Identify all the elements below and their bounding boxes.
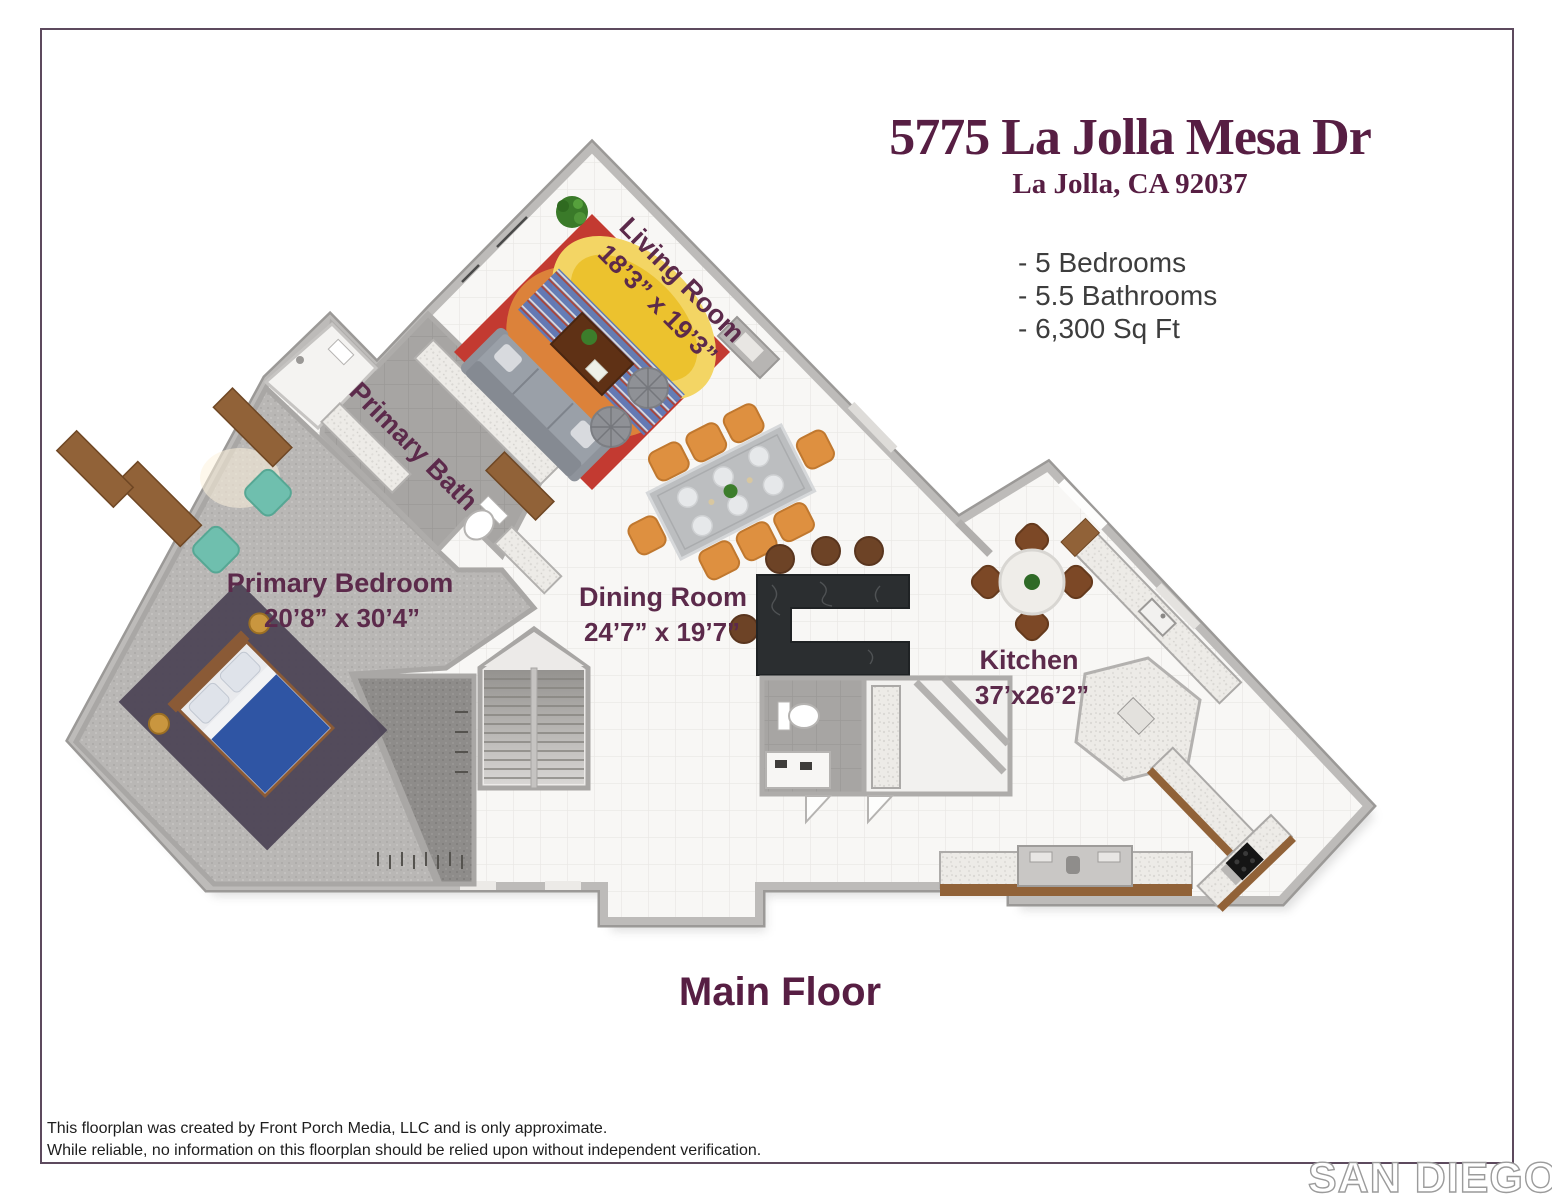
dining-room-dims: 24’7” x 19’7” (584, 617, 740, 647)
floorplan-page: Living Room 18’3” x 19’3” Primary Bath P… (0, 0, 1552, 1200)
page-subtitle: La Jolla, CA 92037 (860, 168, 1400, 201)
kitchen-dims: 37’x26’2” (975, 680, 1089, 710)
primary-bedroom-label: Primary Bedroom (227, 568, 454, 598)
spec-bedrooms: - 5 Bedrooms (1018, 246, 1217, 279)
mls-logo: SAN DIEGOMLS (1308, 1154, 1552, 1200)
mls-logo-part1: SAN DIEGO (1308, 1154, 1552, 1200)
spec-sqft: - 6,300 Sq Ft (1018, 312, 1217, 345)
disclaimer: This floorplan was created by Front Porc… (47, 1118, 761, 1162)
kitchen-label: Kitchen (979, 645, 1078, 675)
powder-room (762, 678, 864, 794)
disclaimer-line1: This floorplan was created by Front Porc… (47, 1118, 761, 1140)
floor-label: Main Floor (580, 970, 980, 1015)
primary-bedroom-dims: 20’8” x 30’4” (264, 603, 420, 633)
header-block: 5775 La Jolla Mesa Dr La Jolla, CA 92037 (860, 110, 1400, 201)
spec-bathrooms: - 5.5 Bathrooms (1018, 279, 1217, 312)
disclaimer-line2: While reliable, no information on this f… (47, 1140, 761, 1162)
plant (556, 196, 588, 228)
dining-room-label: Dining Room (579, 582, 747, 612)
property-specs: - 5 Bedrooms - 5.5 Bathrooms - 6,300 Sq … (1018, 246, 1217, 345)
bottom-counter (940, 846, 1192, 896)
page-title: 5775 La Jolla Mesa Dr (860, 110, 1400, 166)
